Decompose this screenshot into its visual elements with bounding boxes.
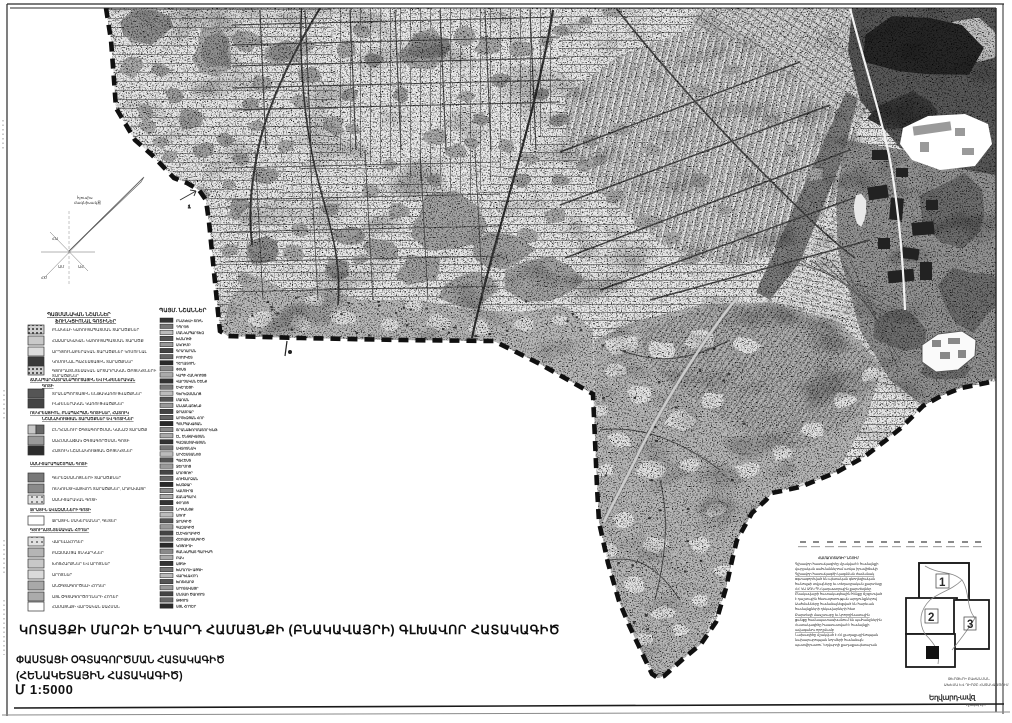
svg-text:ՀՄ: ՀՄ bbox=[41, 275, 48, 280]
svg-text:ԱՀ: ԱՀ bbox=[78, 264, 84, 269]
svg-text:ՀԱՍԱՐԱԿԱԿԱՆ ԿԱՌՈՒՑԱՊԱՏՄԱՆ ՏԱՐԱ: ՀԱՍԱՐԱԿԱԿԱՆ ԿԱՌՈՒՑԱՊԱՏՄԱՆ ՏԱՐԱԾՔ bbox=[52, 338, 144, 343]
svg-text:ԱՐՈՏԱՎԱՅՐ: ԱՐՈՏԱՎԱՅՐ bbox=[176, 586, 199, 590]
svg-text:ԴՊՐՈՑ: ԴՊՐՈՑ bbox=[176, 325, 189, 329]
svg-text:ՋԵՐՄՈՑ: ՋԵՐՄՈՑ bbox=[176, 465, 192, 469]
svg-text:ԱՂԲՅՈՒՐ: ԱՂԲՅՈՒՐ bbox=[176, 471, 193, 475]
svg-text:համայնքների ղեկավարների հետ: համայնքների ղեկավարների հետ bbox=[795, 607, 855, 611]
svg-text:ՎԱՐՉԱԿԱՆ ՇԵՆՔ: ՎԱՐՉԱԿԱՆ ՇԵՆՔ bbox=[176, 380, 208, 384]
svg-text:ԲՆԱԿԵԼԻ ՏՈՒՆ: ԲՆԱԿԵԼԻ ՏՈՒՆ bbox=[176, 319, 203, 323]
svg-text:է դաշտային հետազոտության արդյո: է դաշտային հետազոտության արդյունքներով bbox=[795, 597, 877, 601]
svg-text:ՌԵԿՐԵԱՑԻՈՆ, ԲՆԱՊԱՀՊԱՆ ԳՈՏԻՆԵՐ,: ՌԵԿՐԵԱՑԻՈՆ, ԲՆԱՊԱՀՊԱՆ ԳՈՏԻՆԵՐ, ՀԱՏՈՒԿ bbox=[30, 410, 129, 415]
svg-text:ՃԱՆԱՊԱՐՀ: ՃԱՆԱՊԱՐՀ bbox=[176, 495, 197, 499]
svg-text:ԽԱՆՈՒԹ: ԽԱՆՈՒԹ bbox=[176, 337, 191, 341]
svg-text:ՌԵԿՈՒԼՏԻՎԱՑՎՈՂ ՏԱՐԱԾՔՆԵՐ, ԱՂԲԱ: ՌԵԿՈՒԼՏԻՎԱՑՎՈՂ ՏԱՐԱԾՔՆԵՐ, ԱՂԲԱՎԱՅՐ bbox=[52, 486, 146, 491]
svg-text:ԳԵՐԵԶՄԱՆՈՑ: ԳԵՐԵԶՄԱՆՈՑ bbox=[176, 392, 202, 396]
svg-text:ՖՈՒՆԿՑԻՈՆԱԼ ԳՈՏԻՆԵՐ: ՖՈՒՆԿՑԻՈՆԱԼ ԳՈՏԻՆԵՐ bbox=[55, 319, 117, 324]
svg-text:ՑԱՆԿԱՊԱՏ ՊԱՐԻՍՊ: ՑԱՆԿԱՊԱՏ ՊԱՐԻՍՊ bbox=[176, 550, 213, 554]
svg-text:1: 1 bbox=[939, 577, 946, 589]
svg-text:ԿԱՊԻ ՀԱՆԳՈՒՅՑ: ԿԱՊԻ ՀԱՆԳՈՒՅՑ bbox=[176, 374, 207, 378]
svg-text:ՊԱՀԵՍՏ: ՊԱՀԵՍՏ bbox=[176, 459, 191, 463]
svg-text:ԷԼ. ԵՆԹԱԿԱՅԱՆ: ԷԼ. ԵՆԹԱԿԱՅԱՆ bbox=[176, 434, 205, 438]
svg-text:ԱՆԱՍՆԱՇԵՆՔ: ԱՆԱՍՆԱՇԵՆՔ bbox=[176, 404, 202, 408]
svg-text:ԲՈՒԺԿԵՏ: ԲՈՒԺԿԵՏ bbox=[176, 355, 193, 359]
svg-text:ԱՆՕԳՏԱԳՈՐԾԵԼԻ ՀՈՂԵՐ: ԱՆՕԳՏԱԳՈՐԾԵԼԻ ՀՈՂԵՐ bbox=[52, 583, 106, 588]
svg-text:ԿՈՏԱՅՔԻ ՄԱՐԶԻ ԵՂՎԱՐԴ ՀԱՄԱՅՆՔԻ: ԿՈՏԱՅՔԻ ՄԱՐԶԻ ԵՂՎԱՐԴ ՀԱՄԱՅՆՔԻ (ԲՆԱԿԱՎԱՅՐ… bbox=[19, 623, 560, 637]
svg-text:ՓՈՍՏ: ՓՈՍՏ bbox=[176, 367, 186, 371]
svg-text:ցանցը համապատասխանում են պահան: ցանցը համապատասխանում են պահանջներին bbox=[795, 618, 882, 622]
svg-text:ՄԱՆԿԱՊԱՐՏԵԶ: ՄԱՆԿԱՊԱՐՏԵԶ bbox=[176, 331, 204, 335]
svg-text:Սահմանները համաձայնեցված են հա: Սահմանները համաձայնեցված են հարեւան bbox=[795, 602, 874, 606]
svg-text:Եղվարդ-ավզ: Եղվարդ-ավզ bbox=[929, 692, 976, 702]
svg-text:ԲԱԶՄԱՄՅԱ ՏՆԿԱՐԿՆԵՐ: ԲԱԶՄԱՄՅԱ ՏՆԿԱՐԿՆԵՐ bbox=[52, 550, 104, 555]
svg-text:ԹՓՈՒՏ: ԹՓՈՒՏ bbox=[176, 599, 188, 603]
svg-text:օգտագործված են պետական գեոդեզի: օգտագործված են պետական գեոդեզիական bbox=[795, 577, 875, 581]
svg-text:ՏՐԱՆՍՖՈՐՄԱՏՈՐ ԵՆԹ.: ՏՐԱՆՍՖՈՐՄԱՏՈՐ ԵՆԹ. bbox=[176, 428, 218, 432]
svg-text:ԻՆԺԵՆԵՐԱԿԱՆ ԿԱՌՈՒՑՎԱԾՔՆԵՐ: ԻՆԺԵՆԵՐԱԿԱՆ ԿԱՌՈՒՑՎԱԾՔՆԵՐ bbox=[52, 401, 124, 406]
svg-text:ՏՐԱՆՍՊՈՐՏԱՅԻՆ ԵՆԹԱԿԱՌՈՒՑՎԱԾՔՆԵ: ՏՐԱՆՍՊՈՐՏԱՅԻՆ ԵՆԹԱԿԱՌՈՒՑՎԱԾՔՆԵՐ bbox=[52, 391, 142, 396]
svg-text:էջակարգ․․․: էջակարգ․․․ bbox=[966, 703, 986, 707]
svg-text:վարչական սահմաններում առկա իրա: վարչական սահմաններում առկա իրավիճակի bbox=[795, 567, 878, 571]
svg-text:ԿԱՄՈՒՐՋ: ԿԱՄՈՒՐՋ bbox=[176, 489, 193, 493]
svg-text:ՎԱՐԵԼԱՀՈՂԵՐ: ՎԱՐԵԼԱՀՈՂԵՐ bbox=[52, 539, 84, 544]
svg-text:ԳՐԱԴԱՐԱՆ: ԳՐԱԴԱՐԱՆ bbox=[176, 349, 197, 353]
svg-text:ԳԱԶԱԳԻԾ: ԳԱԶԱԳԻԾ bbox=[176, 526, 194, 530]
svg-text:(ՀԵՆԱԿԵՏԱՅԻՆ ՀԱՏԱԿԱԳԻԾ): (ՀԵՆԱԿԵՏԱՅԻՆ ՀԱՏԱԿԱԳԻԾ) bbox=[16, 670, 183, 682]
svg-text:ԿՈՅՈՒՂԻ: ԿՈՅՈՒՂԻ bbox=[176, 544, 193, 548]
svg-text:ՀԱՄԱՅՆՔԻ ՎԱՐՉԱԿԱՆ ՍԱՀՄԱՆ: ՀԱՄԱՅՆՔԻ ՎԱՐՉԱԿԱՆ ՍԱՀՄԱՆ bbox=[52, 604, 120, 609]
svg-text:ԲՆԱԿԵԼԻ ԿԱՌՈՒՑԱՊԱՏՄԱՆ ՏԱՐԱԾՔՆԵ: ԲՆԱԿԵԼԻ ԿԱՌՈՒՑԱՊԱՏՄԱՆ ՏԱՐԱԾՔՆԵՐ bbox=[52, 327, 139, 332]
svg-text:ՀԱ: ՀԱ bbox=[52, 236, 58, 241]
svg-text:ՀՀ ԿԱ ԱԳԿ ՊԿ կադաստրային քարտե: ՀՀ ԿԱ ԱԳԿ ՊԿ կադաստրային քարտեզներ bbox=[795, 587, 871, 591]
svg-text:ՃԱՆԱՊԱՐՀԱՏՐԱՆՍՊՈՐՏԱՅԻՆ ԵՎ ԻՆԺԵ: ՃԱՆԱՊԱՐՀԱՏՐԱՆՍՊՈՐՏԱՅԻՆ ԵՎ ԻՆԺԵՆԵՐԱԿԱՆ bbox=[30, 377, 135, 382]
svg-text:ԽԱՂՈՂԻ ԱՅԳԻ: ԽԱՂՈՂԻ ԱՅԳԻ bbox=[176, 568, 203, 572]
svg-text:ԱՅԳԻ: ԱՅԳԻ bbox=[176, 562, 187, 566]
svg-text:ՊԱՅՄԱՆԱԿԱՆ ՆՇԱՆՆԵՐ: ՊԱՅՄԱՆԱԿԱՆ ՆՇԱՆՆԵՐ bbox=[47, 312, 111, 318]
svg-text:ՆՐԲԱՆՑՔ: ՆՐԲԱՆՑՔ bbox=[175, 507, 194, 511]
svg-text:2: 2 bbox=[928, 612, 934, 624]
svg-text:ավագանու որոշմամբ: ավագանու որոշմամբ bbox=[795, 628, 834, 632]
svg-text:ՀԱՄԱՌՈՏԱԳԻՐ ՆՇՈՒՄ: ՀԱՄԱՌՈՏԱԳԻՐ ՆՇՈՒՄ bbox=[818, 556, 859, 560]
svg-text:Մ 1:5000: Մ 1:5000 bbox=[15, 682, 73, 697]
svg-text:մագնիսակ易: մագնիսակ易 bbox=[74, 200, 101, 205]
svg-text:ՎԱՐԵԼԱՀՈՂ: ՎԱՐԵԼԱՀՈՂ bbox=[176, 574, 198, 578]
svg-text:Բնակավայրի հատակագծային հենքը: Բնակավայրի հատակագծային հենքը ճշգրտված bbox=[795, 592, 882, 596]
svg-text:ԱՄ: ԱՄ bbox=[58, 264, 65, 269]
svg-text:ՍԱՆԻՏԱՐԱՊԱՇՏՊԱՆ ԳՈՏԻ: ՍԱՆԻՏԱՐԱՊԱՇՏՊԱՆ ԳՈՏԻ bbox=[30, 461, 88, 466]
svg-text:Գլխավոր հատակագծի կազմման ժամա: Գլխավոր հատակագծի կազմման ժամանակ bbox=[795, 572, 874, 576]
svg-text:Քարտեզի մասշտաբը եւ կոորդինատա: Քարտեզի մասշտաբը եւ կոորդինատային bbox=[795, 613, 870, 617]
svg-text:ԱՌՈՒ: ԱՌՈՒ bbox=[176, 513, 186, 517]
svg-text:ՋՐԱՅԻՆ ՄԱԿԵՐԵՍՆԵՐ, ԳԵՏԵՐ: ՋՐԱՅԻՆ ՄԱԿԵՐԵՍՆԵՐ, ԳԵՏԵՐ bbox=[52, 518, 117, 523]
svg-text:ԹԵՐԹԵՐԻ ԲԱԺԱՆՄԱՆ: ԹԵՐԹԵՐԻ ԲԱԺԱՆՄԱՆ bbox=[948, 677, 990, 681]
svg-text:ԳՅՈՒՂԱՏՆՏԵՍԱԿԱՆ ՀՈՂԵՐ: ԳՅՈՒՂԱՏՆՏԵՍԱԿԱՆ ՀՈՂԵՐ bbox=[30, 527, 89, 532]
svg-text:ԽՈՏՀԱՐՔՆԵՐ ԵՎ ԱՐՈՏՆԵՐ: ԽՈՏՀԱՐՔՆԵՐ ԵՎ ԱՐՈՏՆԵՐ bbox=[52, 561, 110, 566]
svg-text:ԳԵՐԵԶՄԱՆՈՑՆԵՐԻ ՏԱՐԱԾՔՆԵՐ: ԳԵՐԵԶՄԱՆՈՑՆԵՐԻ ՏԱՐԱԾՔՆԵՐ bbox=[52, 475, 121, 480]
svg-text:ՍԱՀՄԱՆԱՓԱԿ ՕԳՏԱԳՈՐԾՄԱՆ ԳՈՏԻ: ՍԱՀՄԱՆԱՓԱԿ ՕԳՏԱԳՈՐԾՄԱՆ ԳՈՏԻ bbox=[52, 438, 130, 443]
svg-text:ԱՅԼ ՕԳՏԱԳՈՐԾՈՂՆԵՐԻ ՀՈՂԵՐ: ԱՅԼ ՕԳՏԱԳՈՐԾՈՂՆԵՐԻ ՀՈՂԵՐ bbox=[52, 594, 119, 599]
svg-text:նախարարության նորմերի համաձայն: նախարարության նորմերի համաձայն bbox=[794, 638, 863, 642]
svg-text:պատվիրատու՝ Եղվարդի քաղաքապետա: պատվիրատու՝ Եղվարդի քաղաքապետարան bbox=[795, 643, 877, 647]
svg-text:ԳԱԶԱԼՑԱԿԱՅԱՆ: ԳԱԶԱԼՑԱԿԱՅԱՆ bbox=[176, 440, 206, 444]
svg-text:ՍԱՆԻՏԱՐԱԿԱՆ ԳՈՏԻ: ՍԱՆԻՏԱՐԱԿԱՆ ԳՈՏԻ bbox=[52, 497, 97, 502]
svg-text:ՍԽԵՄԱ ԵՎ ԴԻՐՔԸ ՀԱՏԱԿԱԳԾՈՒՄ: ՍԽԵՄԱ ԵՎ ԴԻՐՔԸ ՀԱՏԱԿԱԳԾՈՒՄ bbox=[944, 683, 1010, 687]
svg-text:ԱՐՈՏՆԵՐ: ԱՐՈՏՆԵՐ bbox=[52, 572, 72, 577]
svg-text:ԵԿԵՂԵՑԻ: ԵԿԵՂԵՑԻ bbox=[176, 386, 194, 390]
svg-text:ՊՈՄՊԱԿԱՅԱՆ: ՊՈՄՊԱԿԱՅԱՆ bbox=[176, 422, 202, 426]
svg-text:ԷԼԵԿՏՐԱԳԻԾ: ԷԼԵԿՏՐԱԳԻԾ bbox=[176, 532, 200, 536]
svg-text:ԱՆՏԱՌ ԾԱՌՈՒՏ: ԱՆՏԱՌ ԾԱՌՈՒՏ bbox=[176, 592, 205, 596]
svg-text:ՓՈՂՈՑ: ՓՈՂՈՑ bbox=[176, 501, 189, 505]
svg-text:ԿՈՄՈՒՆԱԼ-ՊԱՀԵՍՏԱՅԻՆ ՏԱՐԱԾՔՆԵՐ: ԿՈՄՈՒՆԱԼ-ՊԱՀԵՍՏԱՅԻՆ ՏԱՐԱԾՔՆԵՐ bbox=[52, 359, 133, 364]
svg-text:ԱՐՏԵԶՅԱՆ ՀՈՐ: ԱՐՏԵԶՅԱՆ ՀՈՐ bbox=[176, 416, 205, 420]
svg-text:հանույթի տվյալները եւ տեղագրակ: հանույթի տվյալները եւ տեղագրական քարտեզը bbox=[795, 582, 882, 586]
svg-text:ՋՐԱՅԻՆ ԱՎԱԶԱՆՆԵՐԻ ԳՈՏԻ: ՋՐԱՅԻՆ ԱՎԱԶԱՆՆԵՐԻ ԳՈՏԻ bbox=[30, 507, 91, 512]
svg-text:ՆՇԱՆԱԿՈՒԹՅԱՆ ՏԱՐԱԾՔՆԵՐ ԵՎ ԳՈՏԻ: ՆՇԱՆԱԿՈՒԹՅԱՆ ՏԱՐԱԾՔՆԵՐ ԵՎ ԳՈՏԻՆԵՐ bbox=[41, 416, 134, 421]
svg-text:Նախագիծը մշակված է ՀՀ քաղաքաշի: Նախագիծը մշակված է ՀՀ քաղաքաշինության bbox=[795, 633, 878, 637]
svg-text:ԲԱԿ: ԲԱԿ bbox=[176, 556, 184, 560]
svg-text:ՊԱՅՄ. ՆՇԱՆՆԵՐ: ՊԱՅՄ. ՆՇԱՆՆԵՐ bbox=[159, 308, 207, 314]
svg-text:ԱՎՏՈՏՆԱԿ: ԱՎՏՈՏՆԱԿ bbox=[176, 447, 196, 451]
svg-text:ԱԿՈՒՄԲ: ԱԿՈՒՄԲ bbox=[176, 343, 191, 347]
svg-text:ՀՈՒՇԱՐՁԱՆ: ՀՈՒՇԱՐՁԱՆ bbox=[176, 477, 198, 481]
svg-text:Հատակագիծը հաստատված է համայնք: Հատակագիծը հաստատված է համայնքի bbox=[795, 623, 869, 627]
svg-text:3: 3 bbox=[967, 619, 973, 631]
svg-text:ԱՅԼ ՀՈՂԵՐ: ԱՅԼ ՀՈՂԵՐ bbox=[176, 605, 197, 609]
svg-text:ՀԵՌԱԽՈՍԱԳԻԾ: ՀԵՌԱԽՈՍԱԳԻԾ bbox=[176, 538, 205, 542]
svg-text:Գլխավոր հատակագիծը մշակված է հ: Գլխավոր հատակագիծը մշակված է համայնքի bbox=[795, 562, 878, 566]
svg-text:ՋՐԱԳԻԾ: ՋՐԱԳԻԾ bbox=[176, 519, 191, 523]
svg-text:ԱՐԴՅՈՒՆԱԲԵՐԱԿԱՆ ՏԱՐԱԾՔՆԵՐ ԿՈՄՈ: ԱՐԴՅՈՒՆԱԲԵՐԱԿԱՆ ՏԱՐԱԾՔՆԵՐ ԿՈՄՈՒՆԱԼ bbox=[52, 349, 148, 354]
svg-text:ԽԱՉՔԱՐ: ԽԱՉՔԱՐ bbox=[176, 483, 192, 487]
svg-text:ՋՐԱՄԲԱՐ: ՋՐԱՄԲԱՐ bbox=[176, 410, 194, 414]
svg-text:ԴԵՂԱՏՈՒՆ: ԴԵՂԱՏՈՒՆ bbox=[176, 361, 196, 365]
svg-text:ՓԱՍՏԱՑԻ ՕԳՏԱԳՈՐԾՄԱՆ ՀԱՏԱԿԱԳԻԾ: ՓԱՍՏԱՑԻ ՕԳՏԱԳՈՐԾՄԱՆ ՀԱՏԱԿԱԳԻԾ bbox=[16, 655, 225, 666]
svg-text:ԱՐՀԵՍՏԱՆՈՑ: ԱՐՀԵՍՏԱՆՈՑ bbox=[176, 453, 201, 457]
svg-text:ՄԱՌԱՆ: ՄԱՌԱՆ bbox=[176, 398, 190, 402]
svg-text:ՀԱՏՈՒԿ ՆՇԱՆԱԿՈՒԹՅԱՆ ՕԲՅԵԿՏՆԵՐ: ՀԱՏՈՒԿ ՆՇԱՆԱԿՈՒԹՅԱՆ ՕԲՅԵԿՏՆԵՐ bbox=[52, 448, 133, 453]
svg-text:ԳՈՏԻ: ԳՈՏԻ bbox=[42, 383, 54, 388]
svg-text:ԸՆԴՀԱՆՈՒՐ ՕԳՏԱԳՈՐԾՄԱՆ ԿԱՆԱՉ ՏԱ: ԸՆԴՀԱՆՈՒՐ ՕԳՏԱԳՈՐԾՄԱՆ ԿԱՆԱՉ ՏԱՐԱԾՔ bbox=[52, 427, 147, 432]
svg-text:ԽՈՏՀԱՐՔ: ԽՈՏՀԱՐՔ bbox=[176, 580, 194, 584]
